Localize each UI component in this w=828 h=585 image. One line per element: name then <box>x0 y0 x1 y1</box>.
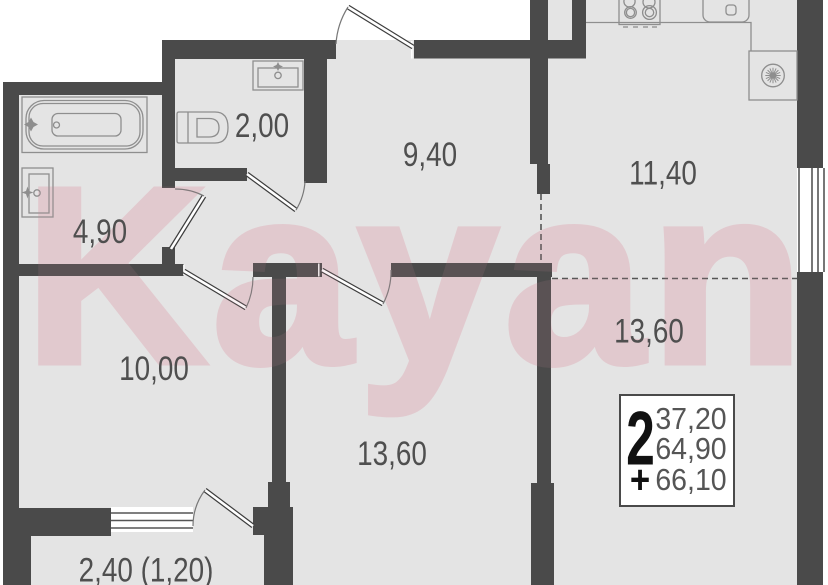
svg-text:4,90: 4,90 <box>73 212 127 250</box>
svg-text:11,40: 11,40 <box>629 154 697 192</box>
svg-text:+: + <box>630 457 650 502</box>
svg-text:10,00: 10,00 <box>119 349 189 387</box>
svg-text:13,60: 13,60 <box>614 312 684 350</box>
svg-text:2,00: 2,00 <box>235 106 289 144</box>
svg-text:64,90: 64,90 <box>655 432 726 466</box>
svg-text:66,10: 66,10 <box>655 463 726 497</box>
svg-text:2,40 (1,20): 2,40 (1,20) <box>79 551 214 585</box>
svg-text:13,60: 13,60 <box>357 434 427 472</box>
svg-text:9,40: 9,40 <box>403 135 457 173</box>
